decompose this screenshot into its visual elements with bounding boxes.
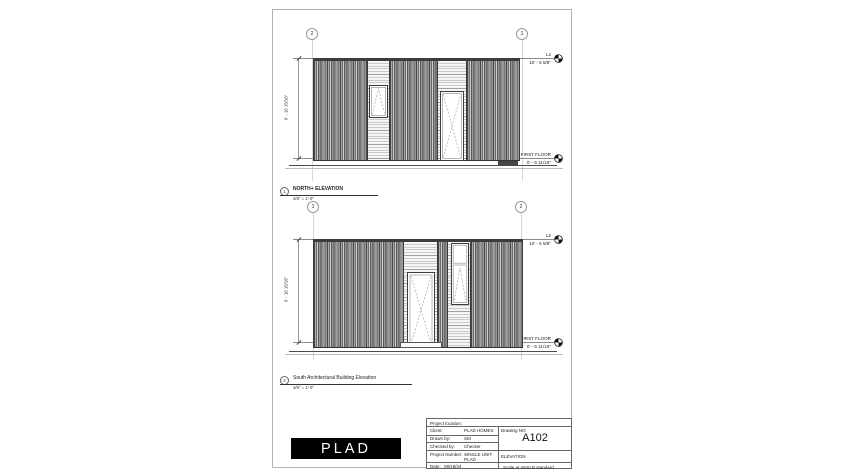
view-scale: 3/8" = 1'-0" bbox=[293, 385, 314, 390]
level-datum-icon bbox=[554, 235, 563, 244]
client-value: PLAD HOMES bbox=[464, 428, 494, 433]
grid-number: 1 bbox=[520, 31, 523, 37]
ground-line bbox=[285, 168, 563, 169]
drawing-sheet: 2 1 L2 10' - 5 5/8" FIRST FLOOR 0' - 6 1… bbox=[272, 9, 572, 468]
window bbox=[451, 243, 469, 305]
wall-south bbox=[313, 239, 523, 348]
scale-note: Scale at ANSI B standard bbox=[503, 465, 554, 470]
grid-number: 2 bbox=[310, 31, 313, 37]
level-datum-icon bbox=[554, 154, 563, 163]
ground-line bbox=[289, 351, 557, 352]
client-label: Client: bbox=[430, 428, 443, 433]
siding-panel bbox=[313, 58, 368, 160]
drawing-no-value: A102 bbox=[501, 432, 569, 445]
project-location-label: Project location: bbox=[430, 421, 462, 426]
grid-bubble: 2 bbox=[515, 201, 527, 213]
view-title: NORTH+ ELEVATION bbox=[293, 186, 343, 192]
siding-panel bbox=[313, 239, 404, 347]
grid-number: 1 bbox=[311, 204, 314, 210]
siding-panel bbox=[466, 58, 520, 160]
wall-cap bbox=[313, 239, 523, 242]
view-title: South Architectural Building Elevation bbox=[293, 375, 376, 381]
wall-cap bbox=[313, 58, 520, 61]
wall-north bbox=[313, 58, 520, 161]
siding-panel bbox=[389, 58, 438, 160]
title-block: Project location: Client: PLAD HOMES Dra… bbox=[426, 418, 572, 469]
door-sill bbox=[400, 342, 442, 348]
level-name: L2 bbox=[499, 52, 551, 57]
grid-bubble: 1 bbox=[516, 28, 528, 40]
sheet-name: ELEVATION bbox=[501, 454, 526, 459]
grid-bubble: 1 bbox=[307, 201, 319, 213]
window bbox=[369, 85, 388, 118]
level-name: L2 bbox=[499, 233, 551, 238]
drawn-by-label: Drawn by: bbox=[430, 436, 450, 441]
level-datum-icon bbox=[554, 338, 563, 347]
ground-line bbox=[285, 354, 563, 355]
door bbox=[407, 272, 435, 348]
plad-logo: PLAD bbox=[291, 438, 401, 459]
plad-logo-text: PLAD bbox=[321, 441, 371, 457]
level-datum-icon bbox=[554, 54, 563, 63]
dimension-text: 9' - 10 15/16" bbox=[284, 78, 289, 138]
dimension-line bbox=[298, 239, 299, 342]
grid-number: 2 bbox=[519, 204, 522, 210]
date-value: 09/18/24 bbox=[444, 464, 462, 469]
view-number: 2 bbox=[283, 378, 286, 383]
checked-by-label: Checked by: bbox=[430, 444, 455, 449]
title-block-line bbox=[427, 426, 571, 427]
title-block-line bbox=[498, 426, 499, 468]
dimension-line bbox=[298, 58, 299, 158]
checked-by-value: Checker bbox=[464, 444, 481, 449]
project-number-label: Project Number: bbox=[430, 452, 463, 457]
view-number: 1 bbox=[283, 189, 286, 194]
project-number-value: SINGLE UNIT PLAD bbox=[464, 452, 497, 463]
date-label: Date: bbox=[430, 464, 441, 469]
siding-panel bbox=[437, 239, 448, 347]
door bbox=[440, 91, 464, 161]
siding-panel bbox=[470, 239, 523, 347]
grid-bubble: 2 bbox=[306, 28, 318, 40]
ground-line bbox=[289, 165, 557, 166]
title-block-line bbox=[427, 450, 571, 451]
drawn-by-value: SM bbox=[464, 436, 471, 441]
dimension-text: 9' - 10 15/16" bbox=[284, 260, 289, 320]
